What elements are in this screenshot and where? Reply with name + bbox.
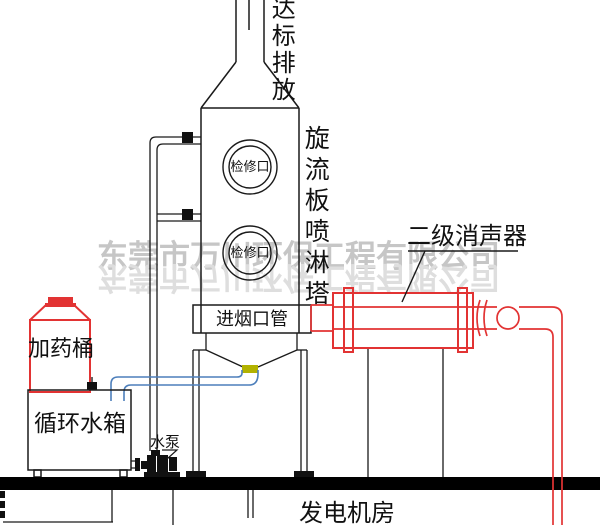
spray-valve-bottom (182, 209, 193, 220)
diagram-canvas (0, 0, 600, 525)
water-tank-label: 循环水箱 (34, 411, 126, 435)
generator-room-label: 发电机房 (299, 501, 395, 525)
tower-base (186, 333, 314, 477)
pipe-ball-joint (497, 307, 519, 329)
drain-pipe (111, 370, 258, 401)
water-pump-shape (131, 450, 180, 477)
water-pump-label: 水泵 (150, 435, 180, 451)
silencer-label: 二级消声器 (407, 224, 527, 249)
spray-tower-body (201, 108, 299, 333)
silencer-shape (333, 288, 473, 477)
inspection-port-top-label: 检修口 (217, 160, 283, 174)
hopper-drain-outlet (242, 365, 258, 373)
silencer-leader-line (402, 251, 518, 302)
diagram-page: 东莞市万川环保工程有限公司 东莞市万川环保工程有限公司 (0, 0, 600, 525)
flue-pipe (311, 300, 562, 525)
dosing-tank-label: 加药桶 (28, 337, 94, 360)
spray-valve-top (182, 132, 193, 143)
dosing-valve (87, 382, 97, 390)
tower-name-label: 旋流板喷淋塔 (302, 125, 328, 311)
inspection-port-bottom-label: 检修口 (217, 246, 283, 260)
stack-outlet-label: 达标排放 (268, 0, 293, 104)
smoke-inlet-duct-label: 进烟口管 (193, 310, 311, 329)
